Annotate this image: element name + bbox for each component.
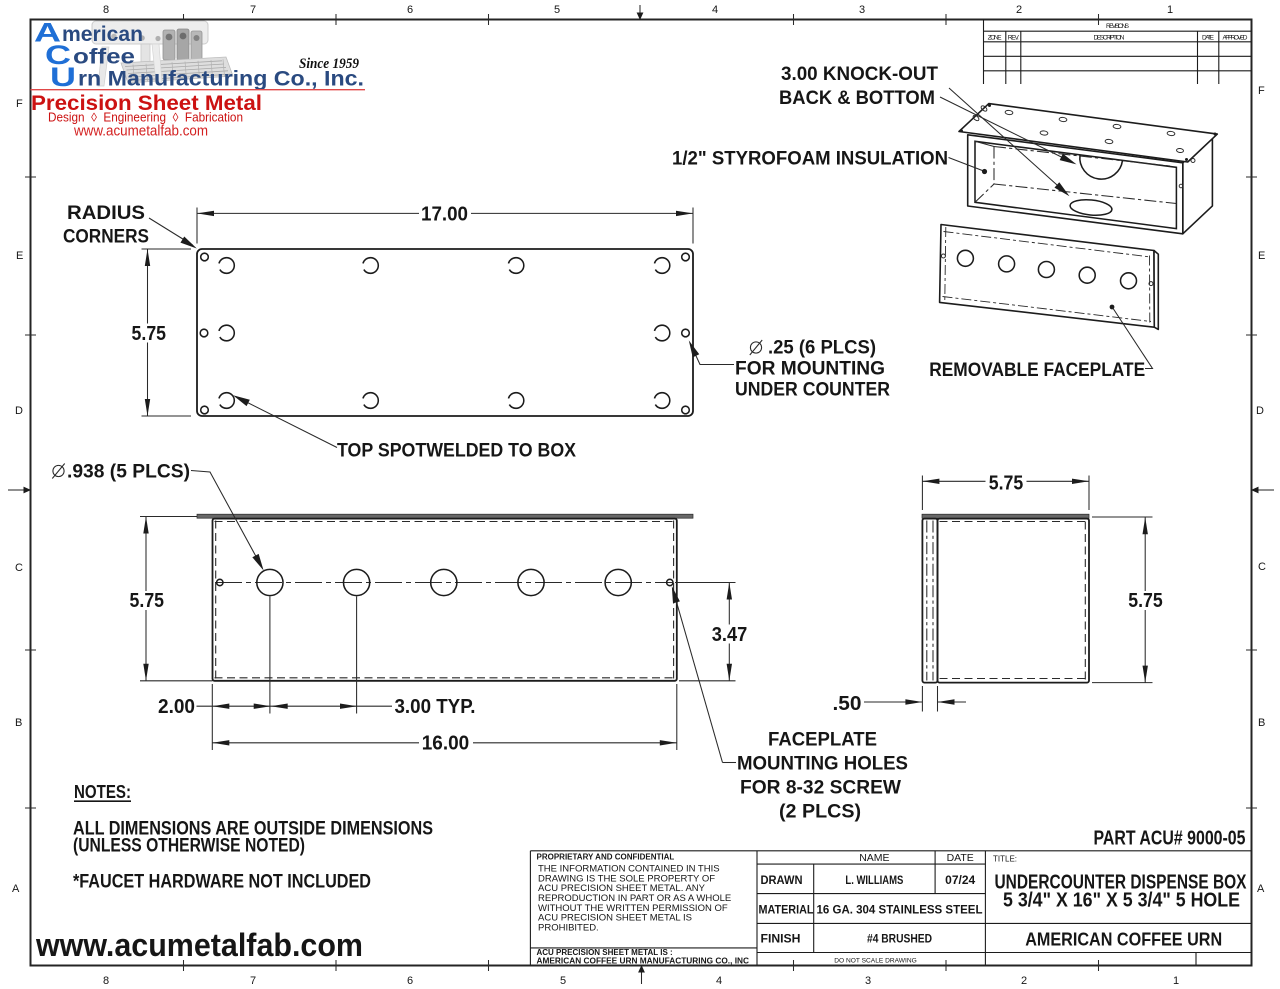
svg-text:F: F [1258,85,1265,97]
svg-text:5 3/4" X 16" X 5 3/4" 5 HOLE: 5 3/4" X 16" X 5 3/4" 5 HOLE [1003,890,1240,912]
svg-text:B: B [1258,717,1265,729]
svg-text:7: 7 [250,975,256,987]
svg-text:TITLE:: TITLE: [993,855,1017,864]
svg-text:C: C [15,562,23,574]
svg-text:D: D [15,405,23,417]
svg-text:2.00: 2.00 [158,696,195,718]
svg-text:www.acumetalfab.com: www.acumetalfab.com [73,123,208,140]
svg-text:5: 5 [560,975,566,987]
svg-text:REMOVABLE FACEPLATE: REMOVABLE FACEPLATE [929,359,1145,381]
svg-text:BACK & BOTTOM: BACK & BOTTOM [779,87,935,109]
svg-text:AMERICAN COFFEE URN MANUFACTUR: AMERICAN COFFEE URN MANUFACTURING CO., I… [537,956,750,966]
svg-text:F: F [16,98,23,110]
svg-text:07/24: 07/24 [945,873,975,887]
svg-text:2: 2 [1021,975,1027,987]
svg-text:MOUNTING HOLES: MOUNTING HOLES [737,753,908,775]
svg-text:16 GA. 304 STAINLESS STEEL: 16 GA. 304 STAINLESS STEEL [817,903,983,917]
svg-text:FOR MOUNTING: FOR MOUNTING [735,358,885,380]
svg-text:PART ACU# 9000-05: PART ACU# 9000-05 [1094,828,1246,850]
svg-text:5.75: 5.75 [130,590,165,612]
svg-text:.50: .50 [833,693,862,715]
svg-text:4: 4 [712,4,718,16]
svg-text:NAME: NAME [859,852,889,864]
svg-text:U: U [50,62,76,92]
svg-text:#4 BRUSHED: #4 BRUSHED [867,932,932,946]
svg-text:FACEPLATE: FACEPLATE [768,729,877,751]
svg-text:B: B [15,717,22,729]
svg-text:E: E [16,250,23,262]
svg-text:D: D [1256,405,1264,417]
svg-text:PROHIBITED.: PROHIBITED. [538,922,599,933]
svg-text:DRAWN: DRAWN [761,873,803,887]
svg-text:3.00 KNOCK-OUT: 3.00 KNOCK-OUT [781,63,938,85]
svg-text:.938 (5 PLCS): .938 (5 PLCS) [67,461,190,483]
svg-text:7: 7 [250,4,256,16]
svg-text:MATERIAL: MATERIAL [759,903,814,917]
svg-text:16.00: 16.00 [422,733,470,755]
svg-text:DATE: DATE [1202,34,1215,41]
svg-text:UNDER COUNTER: UNDER COUNTER [735,379,890,401]
svg-text:3.00 TYP.: 3.00 TYP. [395,696,476,718]
svg-text:4: 4 [716,975,722,987]
svg-text:C: C [1258,561,1266,573]
svg-text:FOR 8-32 SCREW: FOR 8-32 SCREW [740,777,902,799]
svg-text:5.75: 5.75 [989,473,1024,495]
svg-text:FINISH: FINISH [761,932,801,946]
svg-text:*FAUCET HARDWARE NOT INCLUDED: *FAUCET HARDWARE NOT INCLUDED [73,871,371,893]
svg-text:(2 PLCS): (2 PLCS) [779,801,861,823]
svg-text:merican: merican [62,23,143,46]
svg-text:3: 3 [859,4,865,16]
svg-text:offee: offee [73,46,135,69]
svg-text:1: 1 [1173,975,1179,987]
svg-text:Since 1959: Since 1959 [299,56,359,72]
svg-text:.25 (6 PLCS): .25 (6 PLCS) [768,337,876,359]
svg-text:TOP SPOTWELDED TO BOX: TOP SPOTWELDED TO BOX [337,440,576,462]
svg-text:ZONE: ZONE [988,34,1003,41]
svg-text:5.75: 5.75 [1128,590,1163,612]
svg-text:PROPRIETARY AND CONFIDENTIAL: PROPRIETARY AND CONFIDENTIAL [537,853,675,862]
svg-text:6: 6 [407,4,413,16]
svg-text:3.47: 3.47 [712,624,748,646]
svg-text:RADIUS: RADIUS [67,202,145,224]
svg-text:8: 8 [103,4,109,16]
svg-text:AMERICAN COFFEE URN: AMERICAN COFFEE URN [1025,929,1222,950]
svg-text:17.00: 17.00 [421,203,468,225]
svg-text:1/2" STYROFOAM INSULATION: 1/2" STYROFOAM INSULATION [672,148,948,170]
svg-text:REV.: REV. [1008,34,1020,41]
svg-text:E: E [1258,250,1265,262]
svg-text:5.75: 5.75 [132,323,167,345]
svg-text:www.acumetalfab.com: www.acumetalfab.com [35,927,363,963]
svg-text:APPROVED: APPROVED [1223,34,1248,41]
svg-text:3: 3 [865,975,871,987]
svg-text:L. WILLIAMS: L. WILLIAMS [845,873,903,887]
svg-text:2: 2 [1016,4,1022,16]
svg-text:5: 5 [554,4,560,16]
svg-text:A: A [1257,883,1265,895]
svg-text:DO NOT SCALE DRAWING: DO NOT SCALE DRAWING [834,958,916,965]
svg-text:DESCRIPTION: DESCRIPTION [1094,34,1125,41]
svg-text:8: 8 [103,975,109,987]
svg-text:(UNLESS OTHERWISE NOTED): (UNLESS OTHERWISE NOTED) [73,835,305,857]
svg-text:A: A [12,883,20,895]
svg-text:6: 6 [407,975,413,987]
svg-text:1: 1 [1167,4,1173,16]
svg-text:REVISIONS: REVISIONS [1106,23,1130,30]
svg-text:NOTES:: NOTES: [74,782,131,802]
svg-text:CORNERS: CORNERS [63,226,149,248]
svg-text:DATE: DATE [947,852,974,864]
